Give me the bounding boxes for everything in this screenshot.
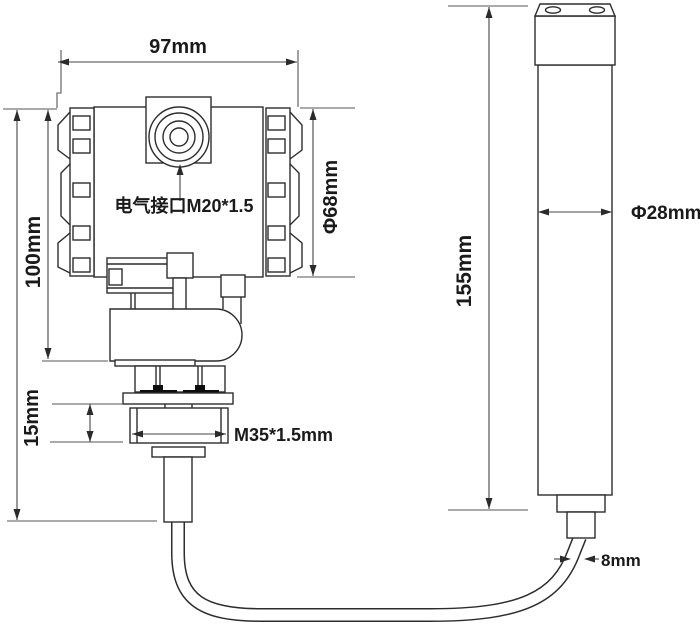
cable-outline xyxy=(178,505,580,615)
flange-lip xyxy=(115,360,195,366)
cable-gland-stem xyxy=(164,457,192,522)
bolt-section xyxy=(135,366,225,394)
label-m35-text: M35*1.5mm xyxy=(234,425,333,445)
collar xyxy=(152,447,205,457)
probe-neck xyxy=(567,512,595,538)
cable xyxy=(178,505,580,615)
label-15mm: 15mm xyxy=(21,389,43,447)
label-8mm: 8mm xyxy=(601,551,641,570)
housing-left-cap xyxy=(58,108,94,276)
probe-body xyxy=(538,65,612,495)
probe-top-hole xyxy=(546,7,561,13)
flange-plate xyxy=(123,393,233,404)
label-phi28mm: Φ28mm xyxy=(631,203,700,224)
side-block xyxy=(221,275,245,297)
dimension-phi68: Φ68mm xyxy=(297,108,355,277)
electrical-port xyxy=(146,97,211,167)
bolt-head xyxy=(153,385,163,390)
port-ring-inner xyxy=(170,128,188,146)
label-155mm: 155mm xyxy=(453,235,476,307)
label-phi68mm: Φ68mm xyxy=(320,160,342,234)
transmitter-probe-diagram: 97mm 100mm 15mm Φ68mm 电气接口M20 xyxy=(0,0,700,629)
probe-drawing xyxy=(535,4,615,538)
process-flange xyxy=(110,309,242,361)
label-97mm: 97mm xyxy=(149,36,207,58)
transmitter-drawing xyxy=(58,97,302,522)
probe-cap xyxy=(535,16,615,65)
bolt-head xyxy=(195,385,205,390)
dimension-155mm: 155mm xyxy=(448,6,528,510)
hex-nut xyxy=(130,408,228,443)
label-electrical-port-text: 电气接口M20*1.5 xyxy=(114,195,253,216)
terminal-block xyxy=(167,253,193,278)
dimension-15mm: 15mm xyxy=(21,389,123,447)
housing-right-cap xyxy=(266,108,302,276)
probe-step xyxy=(557,495,605,512)
dimension-drawing-canvas: 97mm 100mm 15mm Φ68mm 电气接口M20 xyxy=(0,0,700,629)
terminal-stem xyxy=(173,278,186,310)
label-100mm: 100mm xyxy=(22,216,45,288)
probe-top-hole xyxy=(590,7,605,13)
